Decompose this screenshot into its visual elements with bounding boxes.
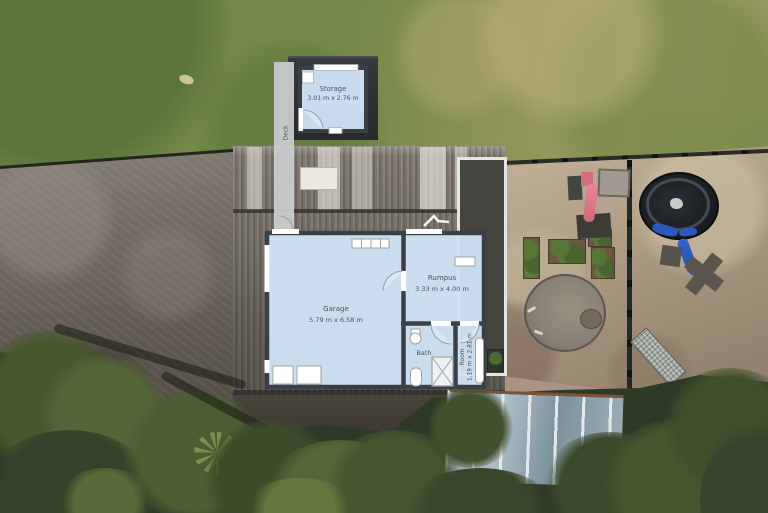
pad-speck <box>534 330 543 336</box>
tree <box>425 388 515 468</box>
skylight <box>300 167 338 190</box>
cubby-house <box>598 168 631 197</box>
garden-bed <box>523 237 540 279</box>
roof-streak <box>352 147 372 210</box>
round-concrete-pad <box>524 274 606 352</box>
aerial-property-photo: Deck Storage 3.01 m x 2.76 m <box>0 0 768 513</box>
storage-shed-roof <box>288 56 378 140</box>
ground-mat <box>660 245 683 268</box>
pad-speck <box>527 306 536 313</box>
roof-streak <box>420 147 446 210</box>
garden-bed <box>548 239 586 264</box>
flat-roof-section <box>457 157 507 376</box>
garden-bed <box>591 247 615 279</box>
roof-streak <box>247 147 262 210</box>
pad-inner-circle <box>580 309 602 329</box>
corner-planter <box>487 349 504 372</box>
trampoline <box>639 172 719 240</box>
trampoline-logo <box>670 198 683 209</box>
